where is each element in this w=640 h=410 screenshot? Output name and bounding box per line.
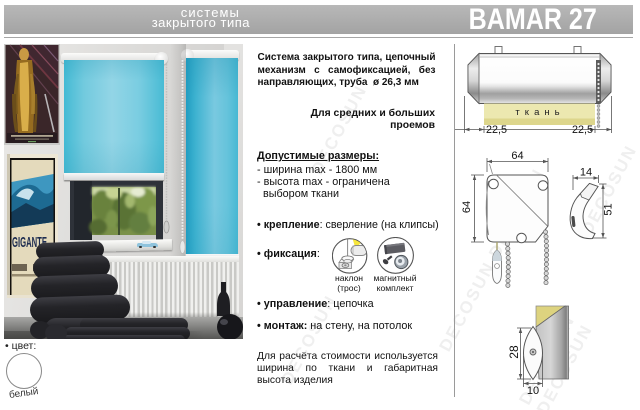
svg-text:51: 51 [603,203,615,215]
svg-text:64: 64 [461,201,473,213]
svg-text:22,5: 22,5 [572,124,593,136]
svg-text:64: 64 [511,150,523,162]
svg-text:ткань: ткань [515,107,564,118]
svg-text:14: 14 [580,167,592,179]
svg-text:22,5: 22,5 [486,124,507,136]
svg-text:28: 28 [507,345,521,359]
svg-text:10: 10 [527,385,539,397]
